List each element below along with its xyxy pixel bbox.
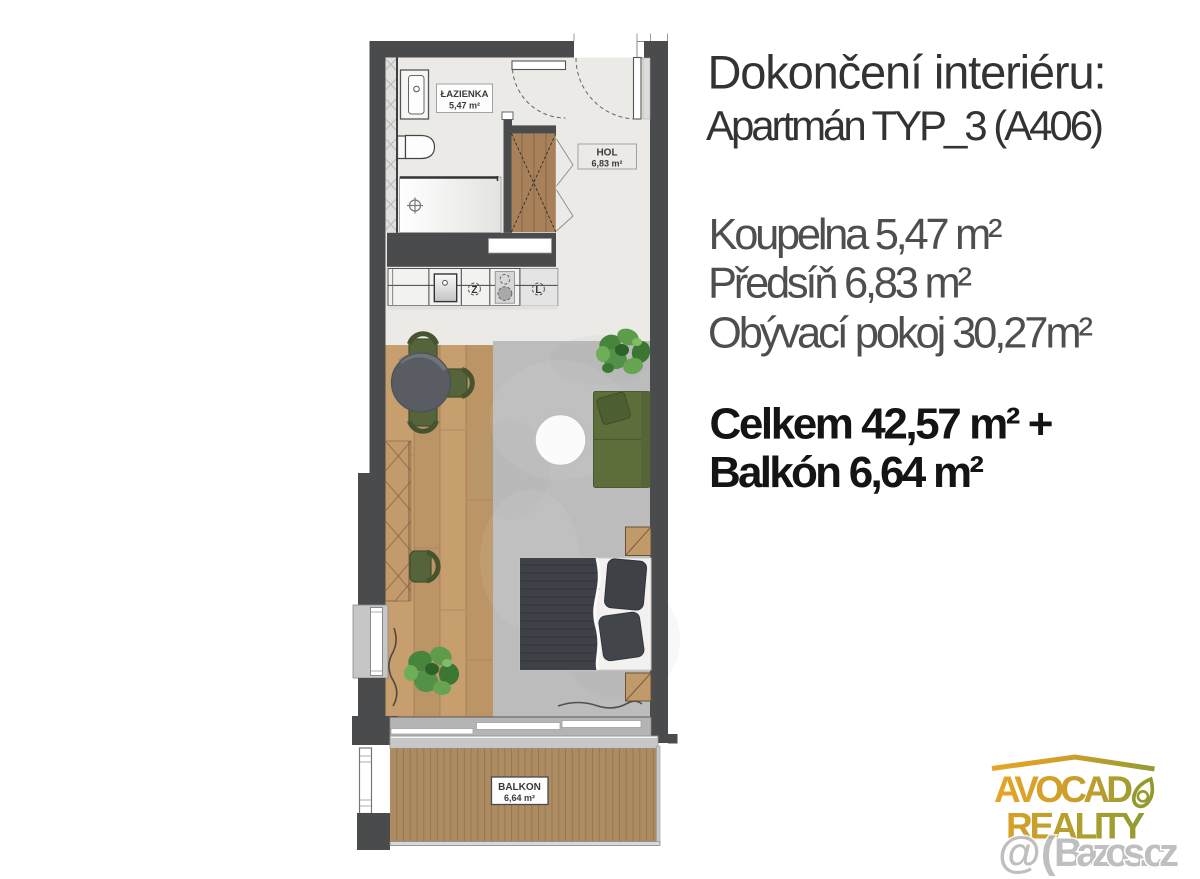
svg-text:Předsíň 6,83 m²: Předsíň 6,83 m² [708, 260, 972, 308]
svg-text:BALKON: BALKON [498, 782, 541, 793]
svg-text:Obývací pokoj 30,27m²: Obývací pokoj 30,27m² [708, 310, 1093, 358]
svg-text:Dokončení interiéru:: Dokončení interiéru: [708, 46, 1107, 99]
svg-text:L: L [535, 285, 541, 296]
svg-text:Koupelna 5,47 m²: Koupelna 5,47 m² [709, 211, 1003, 259]
svg-text:HOL: HOL [596, 148, 617, 159]
svg-text:Balkón 6,64 m²: Balkón 6,64 m² [709, 448, 984, 497]
svg-text:Apartmán TYP_3 (A406): Apartmán TYP_3 (A406) [706, 102, 1104, 149]
svg-text:Z: Z [471, 285, 477, 296]
svg-text:5,47 m²: 5,47 m² [449, 101, 480, 111]
svg-text:@(: @( [998, 828, 1056, 877]
svg-text:AVOCAD: AVOCAD [994, 769, 1133, 810]
svg-text:6,64 m²: 6,64 m² [504, 793, 535, 803]
svg-text:6,83 m²: 6,83 m² [591, 159, 622, 169]
svg-text:Celkem 42,57 m² +: Celkem 42,57 m² + [710, 400, 1054, 449]
svg-text:Bazos.cz: Bazos.cz [1054, 831, 1179, 875]
svg-text:ŁAZIENKA: ŁAZIENKA [440, 89, 488, 100]
